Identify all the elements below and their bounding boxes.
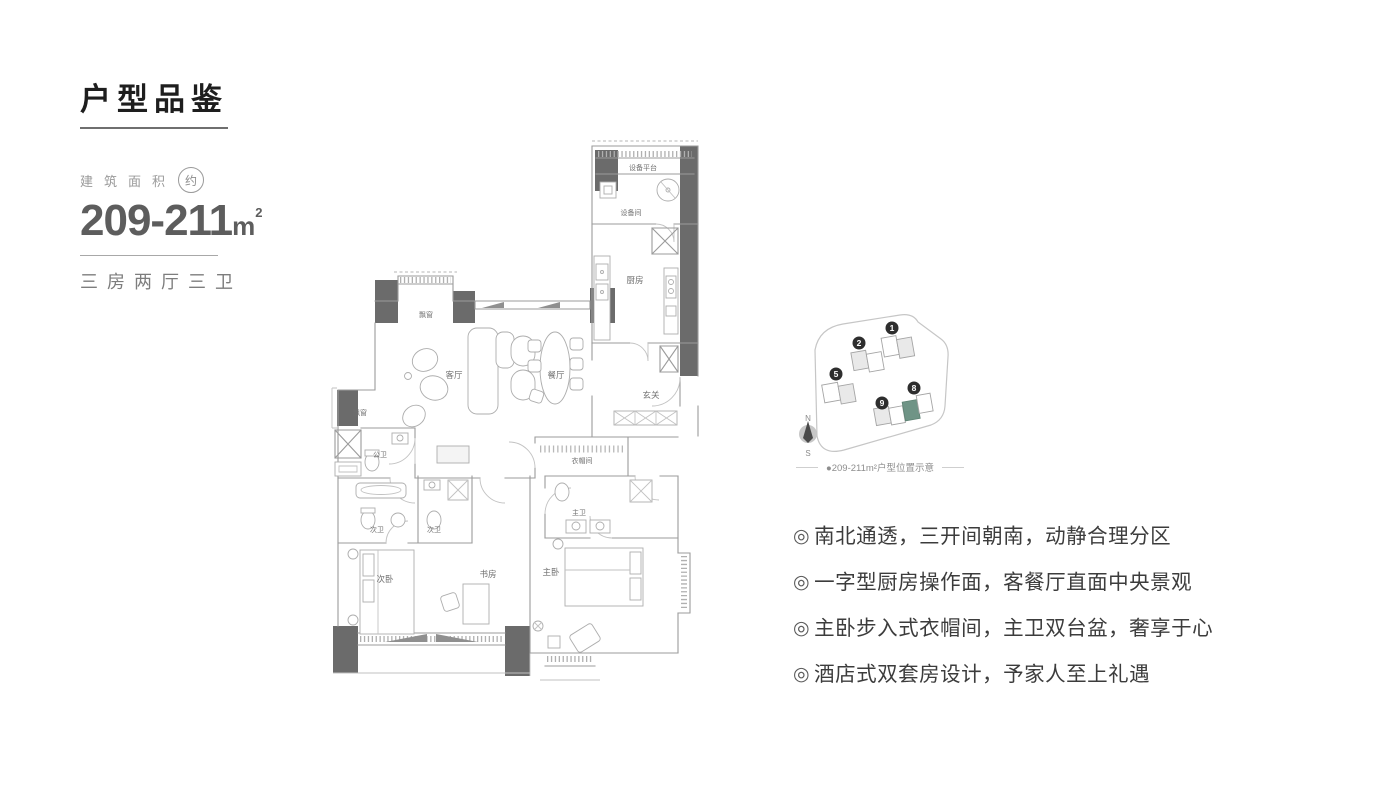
room-label-kitchen: 厨房 xyxy=(626,275,643,285)
building-8 xyxy=(901,393,934,421)
compass-south-label: S xyxy=(805,449,810,458)
room-label-bay-window-top: 飘窗 xyxy=(419,310,433,319)
bullet-marker-icon: ◎ xyxy=(793,560,810,606)
badge-8: 8 xyxy=(912,383,917,393)
divider-line xyxy=(80,255,218,256)
huxing-page: 户型品鉴 建筑面积 约 209-211m2 三房两厅三卫 xyxy=(0,0,1400,788)
bullet-marker-icon: ◎ xyxy=(793,652,810,698)
left-panel: 户型品鉴 建筑面积 约 209-211m2 三房两厅三卫 xyxy=(80,74,310,294)
building-5 xyxy=(822,380,856,407)
bullet-marker-icon: ◎ xyxy=(793,514,810,560)
room-label-second-bath-1: 次卫 xyxy=(370,525,384,534)
caption-dash-left xyxy=(796,467,818,468)
compass-icon: N S xyxy=(799,414,817,458)
room-label-study: 书房 xyxy=(479,569,496,579)
badge-5: 5 xyxy=(834,369,839,379)
room-label-bay-window-left: 飘窗 xyxy=(353,408,367,417)
area-number: 209-211 xyxy=(80,196,232,245)
room-label-equipment-platform: 设备平台 xyxy=(629,163,657,172)
siteplan-caption: ●209-211m²户型位置示意 xyxy=(826,460,934,474)
siteplan-caption-row: ●209-211m²户型位置示意 xyxy=(788,460,972,474)
area-label: 建筑面积 xyxy=(80,171,176,190)
siteplan-drawing: 1 2 5 8 9 N S xyxy=(790,308,974,460)
feature-item: ◎ 一字型厨房操作面，客餐厅直面中央景观 xyxy=(793,560,1253,606)
room-label-master-bedroom: 主卧 xyxy=(542,567,560,577)
room-label-foyer: 玄关 xyxy=(642,390,660,400)
feature-list: ◎ 南北通透，三开间朝南，动静合理分区 ◎ 一字型厨房操作面，客餐厅直面中央景观… xyxy=(793,514,1253,698)
floorplan-drawing: 设备平台 设备间 厨房 飘窗 飘窗 客厅 餐厅 玄关 衣帽间 公卫 次卫 次卫 … xyxy=(330,128,710,690)
room-label-guest-bath: 公卫 xyxy=(373,451,387,459)
feature-item: ◎ 南北通透，三开间朝南，动静合理分区 xyxy=(793,514,1253,560)
approx-badge: 约 xyxy=(178,167,204,193)
feature-item: ◎ 主卧步入式衣帽间，主卫双台盆，奢享于心 xyxy=(793,606,1253,652)
feature-item: ◎ 酒店式双套房设计，予家人至上礼遇 xyxy=(793,652,1253,698)
bullet-marker-icon: ◎ xyxy=(793,606,810,652)
room-label-second-bath-2: 次卫 xyxy=(427,525,441,534)
building-2 xyxy=(851,348,884,375)
page-title: 户型品鉴 xyxy=(80,74,228,129)
area-unit-sup: 2 xyxy=(255,205,262,220)
feature-text: 酒店式双套房设计，予家人至上礼遇 xyxy=(814,652,1150,698)
room-label-cloakroom: 衣帽间 xyxy=(572,456,593,465)
caption-dash-right xyxy=(942,467,964,468)
area-value: 209-211m2 xyxy=(80,199,310,243)
feature-text: 南北通透，三开间朝南，动静合理分区 xyxy=(814,514,1171,560)
building-1 xyxy=(881,333,915,361)
badge-1: 1 xyxy=(890,323,895,333)
layout-text: 三房两厅三卫 xyxy=(80,268,310,294)
area-unit: m xyxy=(232,211,255,241)
siteplan-buildings xyxy=(822,333,934,427)
badge-9: 9 xyxy=(880,398,885,408)
room-label-equipment-room: 设备间 xyxy=(621,208,642,217)
badge-2: 2 xyxy=(857,338,862,348)
room-label-living: 客厅 xyxy=(445,370,463,380)
room-label-second-bedroom: 次卧 xyxy=(376,574,394,584)
area-label-row: 建筑面积 约 xyxy=(80,167,310,193)
room-label-dining: 餐厅 xyxy=(547,370,565,380)
feature-text: 一字型厨房操作面，客餐厅直面中央景观 xyxy=(814,560,1192,606)
room-label-master-bath: 主卫 xyxy=(572,508,586,517)
feature-text: 主卧步入式衣帽间，主卫双台盆，奢享于心 xyxy=(814,606,1213,652)
